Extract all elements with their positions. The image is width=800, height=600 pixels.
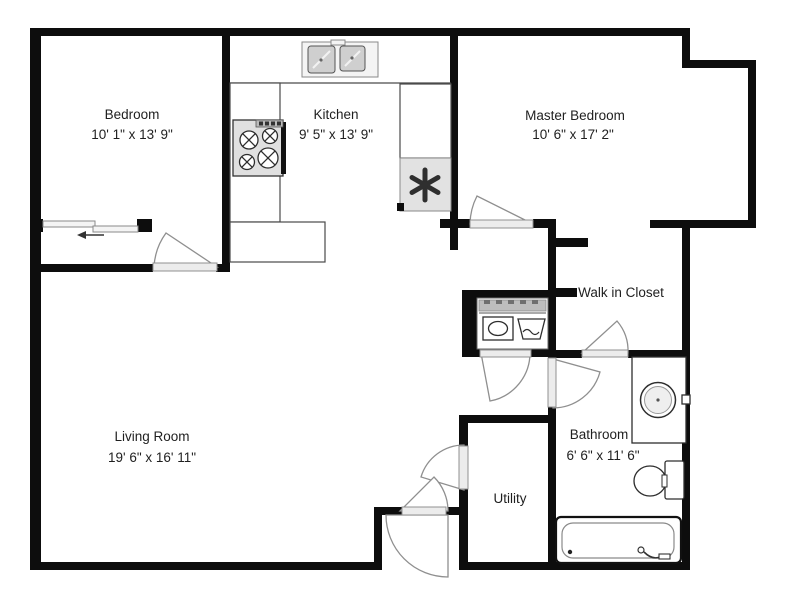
bathtub-drain xyxy=(568,550,572,554)
closet-bathroom-door xyxy=(582,321,628,357)
wall-right-upper xyxy=(748,60,756,228)
sliding-closet-doors-icon xyxy=(43,221,138,239)
closet-door-panel-2 xyxy=(93,226,138,232)
vanity-faucet xyxy=(682,395,690,404)
living-room-dimensions: 19' 6" x 16' 11" xyxy=(108,450,196,465)
bathroom-hall-door xyxy=(548,358,600,408)
washer-door xyxy=(489,322,508,336)
stove-knob-2 xyxy=(265,122,269,126)
wall-corridor-stub xyxy=(450,226,458,250)
entry-door-swing-outer xyxy=(386,515,448,577)
kitchen-label: Kitchen xyxy=(313,107,358,122)
closet-bathroom-door-swing xyxy=(582,321,628,353)
master-bedroom-dimensions: 10' 6" x 17' 2" xyxy=(532,127,614,142)
entry-door xyxy=(386,477,448,577)
cabinet-tall xyxy=(400,84,451,158)
wall-bedroom-bottom-post xyxy=(216,264,230,272)
counter-peninsula xyxy=(230,222,325,262)
toilet-icon xyxy=(634,461,684,499)
wall-closet-vertical-upper xyxy=(548,220,556,358)
wall-laundry-left xyxy=(462,290,477,357)
closet-slide-arrow-head xyxy=(77,231,86,239)
wall-notch-vertical xyxy=(682,28,690,68)
laundry-fixtures xyxy=(477,298,548,349)
bathtub-inner xyxy=(562,523,674,558)
wall-bedroom-kitchen-divider xyxy=(222,36,230,272)
toilet-hinge xyxy=(662,475,667,487)
wall-closet-vertical-lower xyxy=(548,407,556,570)
wall-master-bottom-right xyxy=(650,220,756,228)
wall-top xyxy=(30,28,690,36)
master-bedroom-door-sill xyxy=(470,220,533,228)
wall-laundry-top xyxy=(462,290,556,298)
stove-knob-4 xyxy=(277,122,281,126)
kitchen-dimensions: 9' 5" x 13' 9" xyxy=(299,127,373,142)
stove-body xyxy=(233,120,283,176)
shelf-tick xyxy=(496,300,502,304)
dryer-icon xyxy=(518,319,545,339)
wall-closet-end-left xyxy=(30,219,43,232)
stove-knob-1 xyxy=(259,122,263,126)
washer-icon xyxy=(483,317,513,340)
floor-plan: Bedroom 10' 1" x 13' 9" Kitchen 9' 5" x … xyxy=(0,0,800,600)
bathtub-faucet-handle xyxy=(638,547,644,553)
dryer-body xyxy=(518,319,545,339)
water-heater-corner-block xyxy=(397,203,404,211)
wall-closet-stub-2 xyxy=(556,288,577,297)
stove-icon xyxy=(233,120,286,176)
bedroom-door-sill xyxy=(153,263,217,271)
shelf-tick xyxy=(532,300,538,304)
vanity-drain xyxy=(656,398,659,401)
bathtub-icon xyxy=(556,517,681,563)
floor-plan-page: Bedroom 10' 1" x 13' 9" Kitchen 9' 5" x … xyxy=(0,0,800,600)
bedroom-door-swing xyxy=(154,233,217,267)
shelf-tick xyxy=(484,300,490,304)
wall-entry-step-vertical xyxy=(374,514,382,570)
wall-bottom-left xyxy=(30,562,382,570)
bathtub-faucet-base xyxy=(659,554,670,559)
vanity-sink-icon xyxy=(632,357,690,443)
wall-closet-bath-left xyxy=(556,350,582,358)
room-labels: Bedroom 10' 1" x 13' 9" Kitchen 9' 5" x … xyxy=(91,107,664,506)
laundry-door-swing xyxy=(481,353,530,401)
bathroom-hall-door-swing xyxy=(553,359,600,408)
living-room-label: Living Room xyxy=(114,429,189,444)
toilet-bowl xyxy=(634,466,666,496)
laundry-door xyxy=(480,350,531,401)
utility-door-panel xyxy=(459,446,468,489)
bedroom-door xyxy=(153,233,217,271)
closet-bathroom-door-sill xyxy=(582,350,628,357)
entry-door-sill xyxy=(402,507,446,515)
master-bedroom-door xyxy=(470,196,533,228)
toilet-tank xyxy=(665,461,684,499)
kitchen-sink-icon xyxy=(302,40,378,77)
bathroom-label: Bathroom xyxy=(570,427,629,442)
shelf-tick xyxy=(508,300,514,304)
kitchen-fixtures xyxy=(230,40,451,262)
wall-utility-top xyxy=(459,415,556,423)
wall-laundry-bottom-right xyxy=(531,349,556,357)
wall-utility-left-lower xyxy=(459,488,468,570)
sink-drain-left xyxy=(319,58,322,61)
wall-left xyxy=(30,28,41,570)
sink-drain-right xyxy=(350,56,353,59)
bedroom-dimensions: 10' 1" x 13' 9" xyxy=(91,127,173,142)
sink-faucet xyxy=(331,40,345,45)
bedroom-label: Bedroom xyxy=(105,107,160,122)
stove-oven-door xyxy=(281,122,286,174)
wall-bedroom-bottom xyxy=(30,264,153,272)
master-bedroom-label: Master Bedroom xyxy=(525,108,625,123)
water-heater-icon xyxy=(397,158,451,211)
bathroom-dimensions: 6' 6" x 11' 6" xyxy=(566,448,639,463)
bathroom-hall-door-panel xyxy=(548,358,556,407)
utility-label: Utility xyxy=(494,491,527,506)
laundry-door-sill xyxy=(480,350,531,357)
shelf-tick xyxy=(520,300,526,304)
wall-notch-horizontal xyxy=(682,60,756,68)
wall-closet-stub-1 xyxy=(556,238,588,247)
wall-laundry-bottom-left xyxy=(462,349,480,357)
stove-knob-3 xyxy=(271,122,275,126)
closet-door-panel-1 xyxy=(43,221,95,227)
walk-in-closet-label: Walk in Closet xyxy=(578,285,664,300)
wall-closet-end-right xyxy=(137,219,152,232)
wall-entry-step-horizontal xyxy=(374,507,402,515)
